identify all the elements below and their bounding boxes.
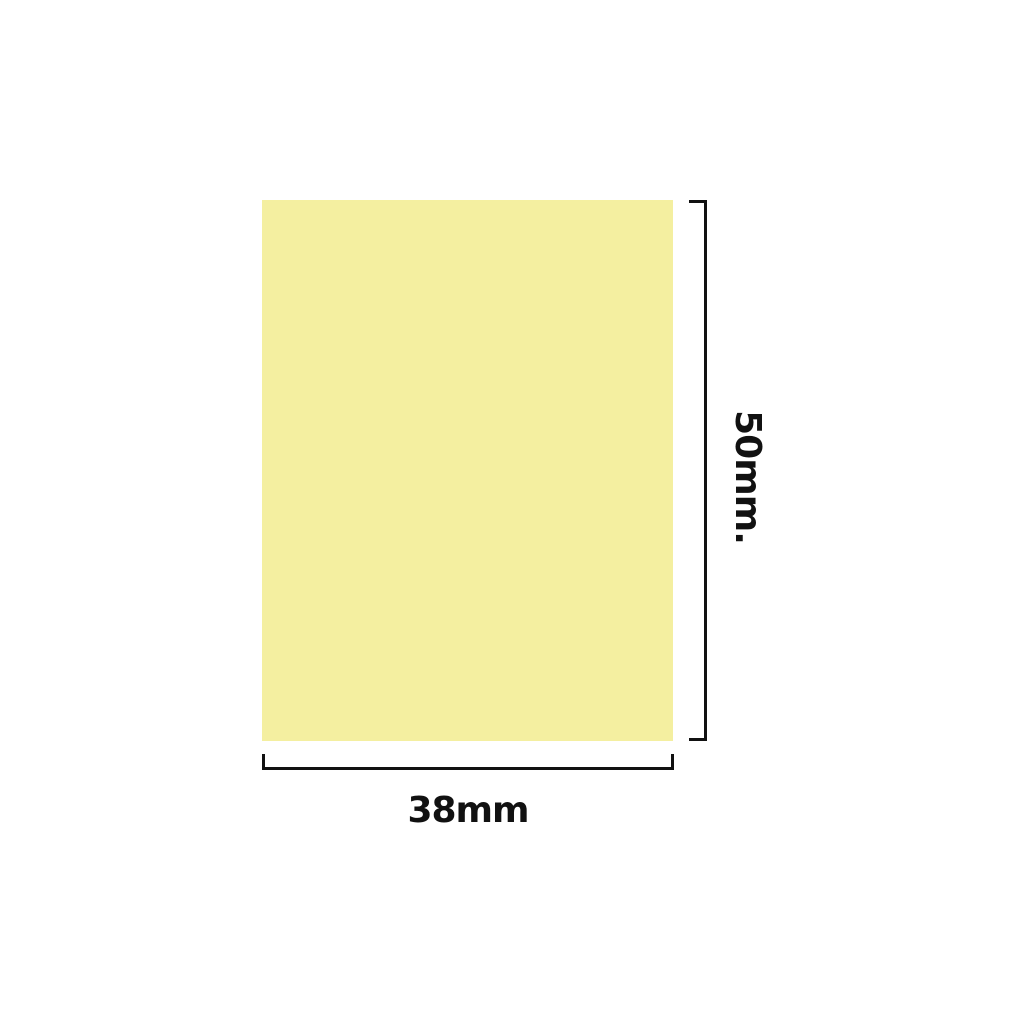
width-dimension-bracket [262,754,674,770]
diagram-canvas: 50mm. 38mm [0,0,1024,1024]
height-dimension-label: 50mm. [725,377,769,577]
sticky-note-shape [262,200,673,741]
height-dimension-bracket [689,200,707,741]
width-dimension-label: 38mm [262,790,674,831]
